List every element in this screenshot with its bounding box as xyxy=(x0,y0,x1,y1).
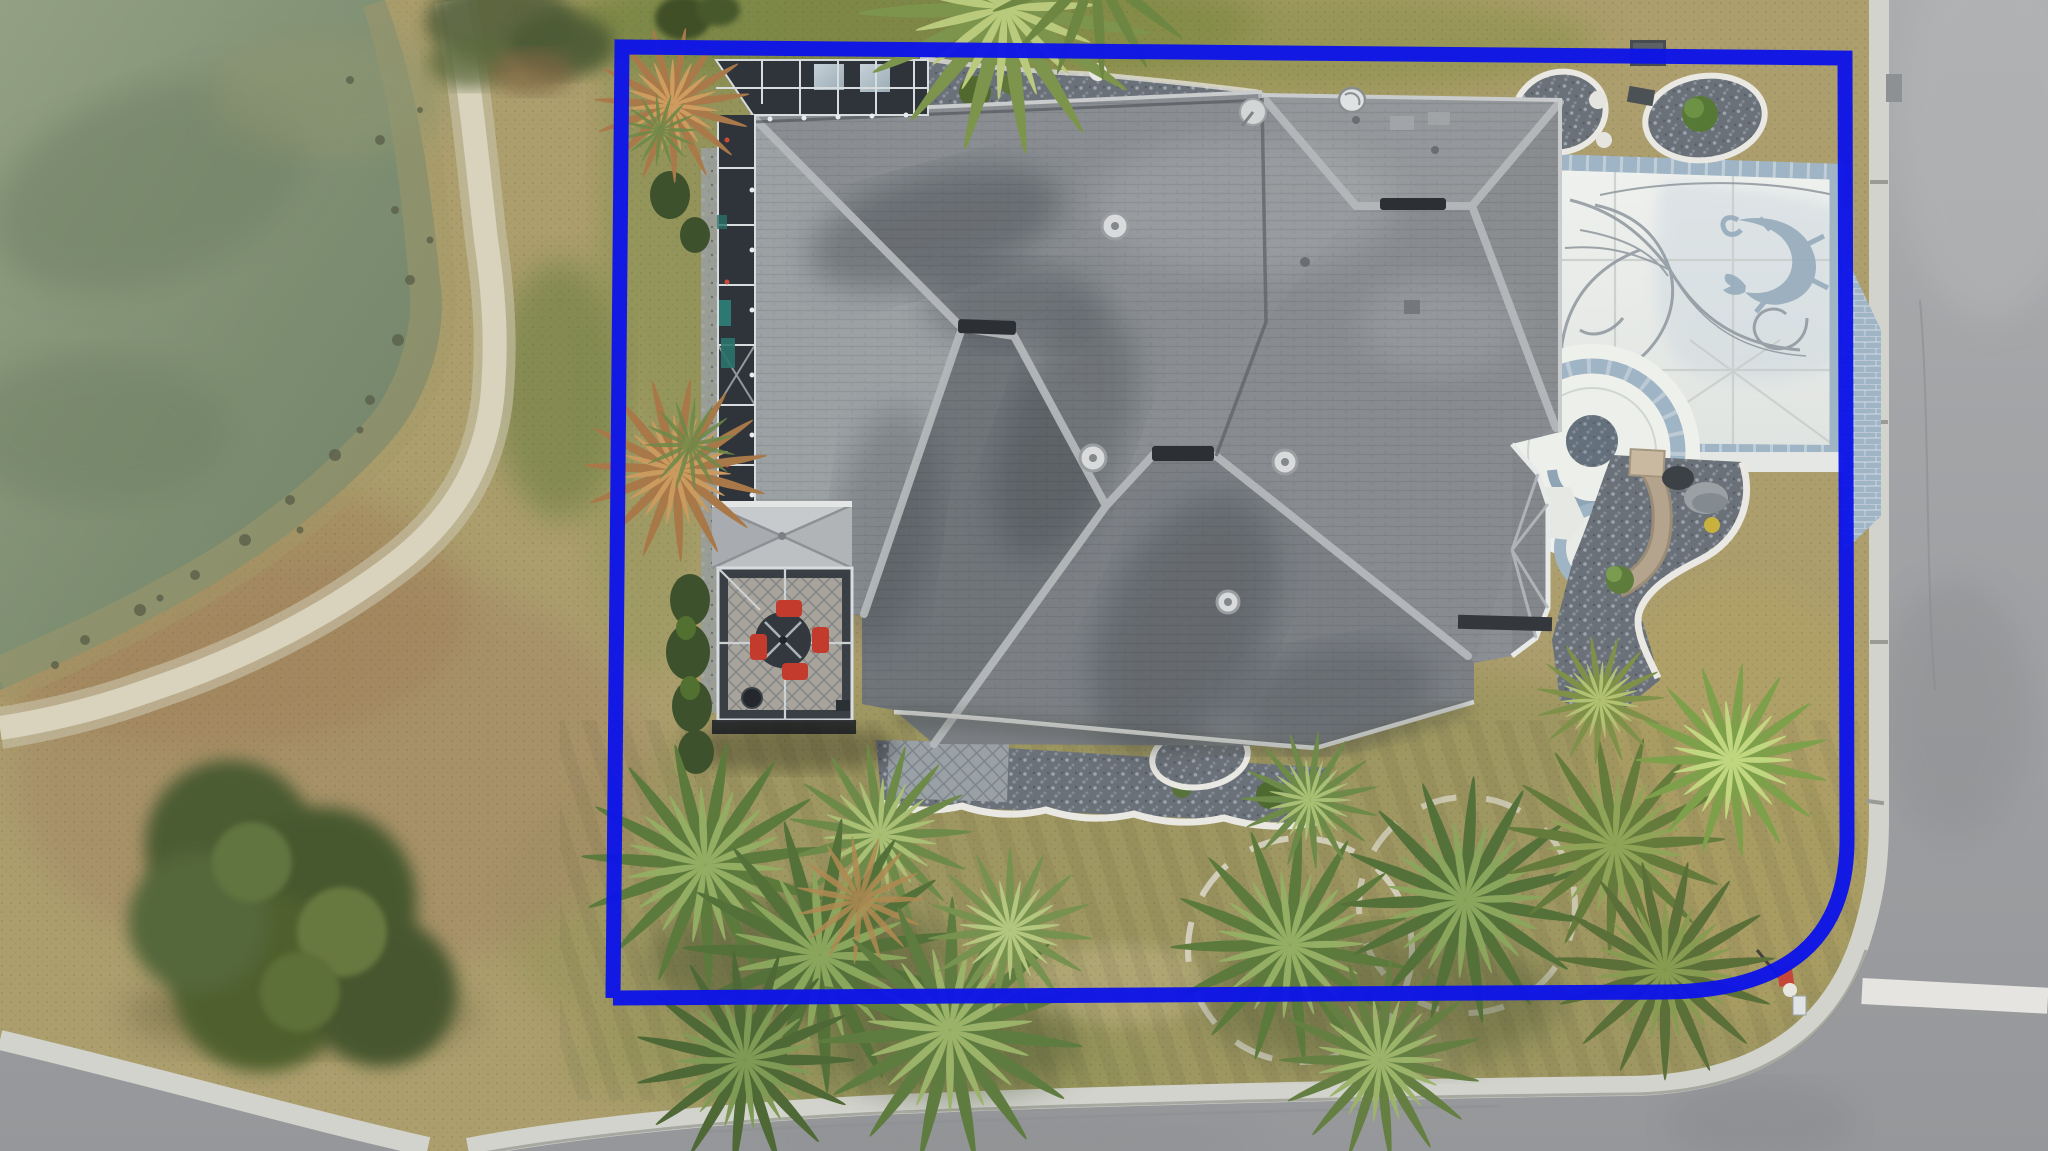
satellite-dish xyxy=(1240,99,1266,126)
gazebo-roof xyxy=(712,501,852,568)
mailbox xyxy=(1886,74,1902,102)
tile-border-top xyxy=(1552,162,1845,172)
fountain xyxy=(1662,466,1694,490)
aerial-photo xyxy=(0,0,2048,1151)
house-roof xyxy=(753,88,1560,786)
cage-top-band xyxy=(716,60,928,115)
lanai-patio xyxy=(718,568,852,720)
